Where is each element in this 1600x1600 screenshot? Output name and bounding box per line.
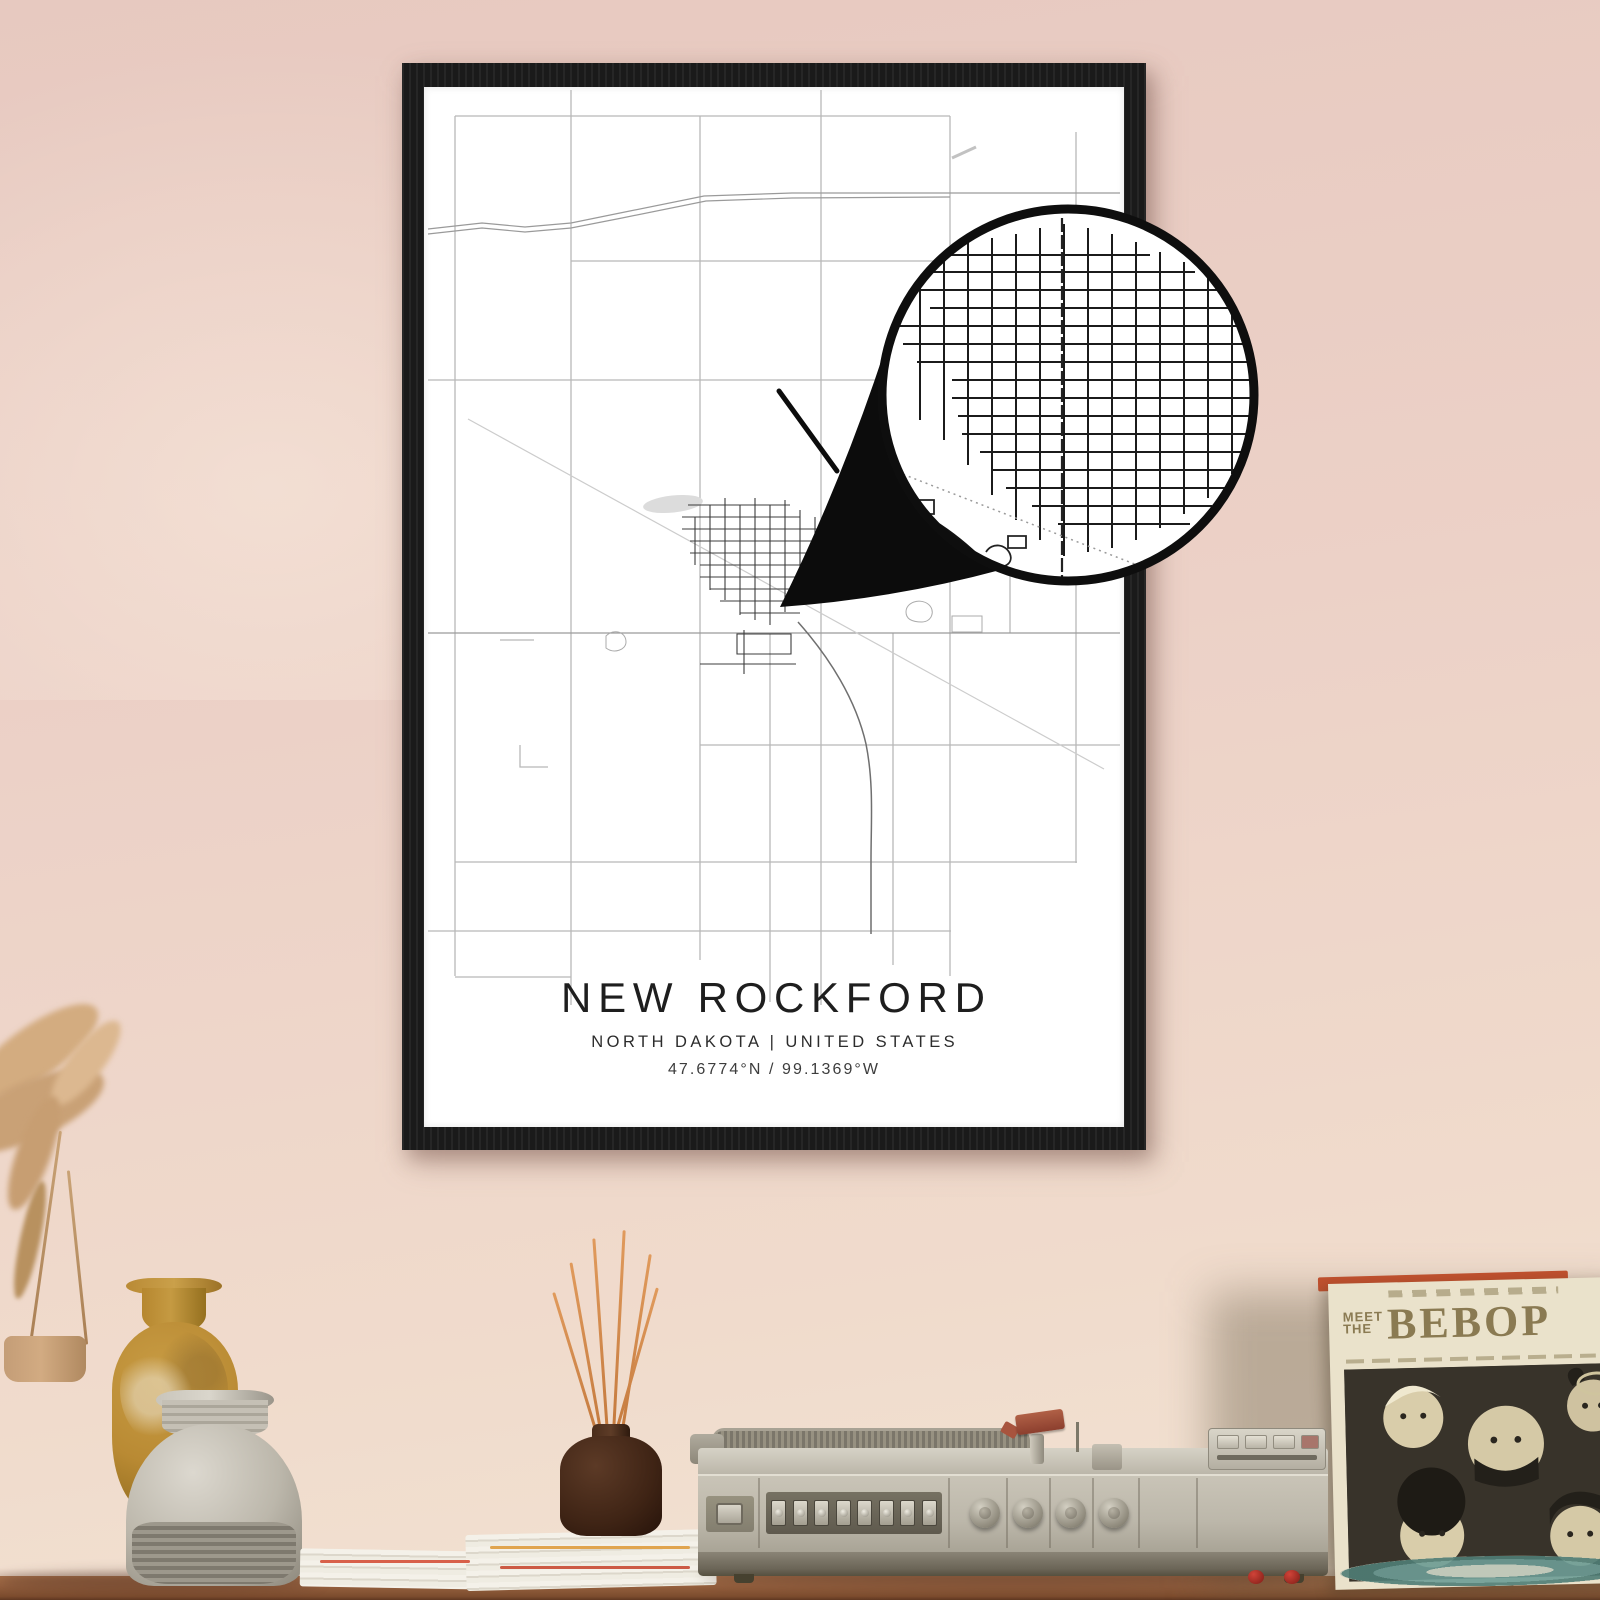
preset-button — [857, 1500, 872, 1526]
preset-button — [922, 1500, 937, 1526]
deck-key — [1217, 1435, 1239, 1449]
power-button-pad — [706, 1496, 754, 1532]
preset-button — [900, 1500, 915, 1526]
deck-slider-slot — [1217, 1455, 1317, 1460]
sleeve-faces-art — [1344, 1363, 1600, 1582]
magazine-stack — [300, 1548, 491, 1589]
sleeve-header: MEET THE BEBOP — [1343, 1299, 1600, 1306]
grass-stem — [67, 1170, 88, 1344]
tonearm-cartridge — [1015, 1409, 1065, 1435]
room-scene: NEW ROCKFORD NORTH DAKOTA | UNITED STATE… — [0, 0, 1600, 1600]
preset-button — [793, 1500, 808, 1526]
reed-diffuser-bottle — [560, 1436, 662, 1536]
panel-seam — [758, 1478, 760, 1548]
player-base — [698, 1552, 1328, 1576]
poster-text-block: NEW ROCKFORD NORTH DAKOTA | UNITED STATE… — [424, 0, 1122, 1130]
magazine-edge — [320, 1560, 470, 1563]
deck-key — [1245, 1435, 1267, 1449]
incense-reed — [552, 1292, 599, 1436]
gray-vase-ribs — [132, 1522, 296, 1584]
preset-button — [814, 1500, 829, 1526]
sleeve-artwork — [1344, 1363, 1600, 1582]
panel-seam — [948, 1478, 950, 1548]
poster-subtitle: NORTH DAKOTA | UNITED STATES — [424, 1033, 1122, 1052]
deck-key — [1273, 1435, 1295, 1449]
poster-coordinates: 47.6774°N / 99.1369°W — [424, 1061, 1122, 1079]
player-foot — [734, 1574, 754, 1583]
panel-seam — [1138, 1478, 1140, 1548]
sleeve-pretitle-line2: THE — [1343, 1323, 1372, 1336]
tan-vase — [0, 1370, 122, 1586]
deck-switch-block — [1092, 1444, 1122, 1470]
magazine-stack — [465, 1529, 716, 1591]
power-button — [716, 1503, 743, 1525]
panel-seam — [1196, 1478, 1198, 1548]
deck-key — [1301, 1435, 1319, 1449]
balance-knob — [1056, 1498, 1086, 1528]
station-preset-buttons — [766, 1492, 942, 1534]
tuning-knob — [1099, 1498, 1129, 1528]
panel-seam — [1049, 1478, 1051, 1548]
sleeve-tracklist-print — [1346, 1353, 1596, 1363]
tonearm-post — [1030, 1434, 1044, 1464]
record-sleeve: MEET THE BEBOP — [1328, 1277, 1600, 1590]
tone-knob — [1013, 1498, 1043, 1528]
incense-reed — [620, 1254, 652, 1436]
poster-title: NEW ROCKFORD — [424, 974, 1122, 1022]
antenna-rod — [1076, 1422, 1079, 1452]
panel-seam — [1006, 1478, 1008, 1548]
sleeve-title: BEBOP — [1386, 1295, 1551, 1350]
magazine-edge — [490, 1546, 690, 1549]
panel-seam — [1092, 1478, 1094, 1548]
preset-button — [879, 1500, 894, 1526]
magazine-edge — [500, 1566, 690, 1569]
volume-knob — [970, 1498, 1000, 1528]
preset-button — [836, 1500, 851, 1526]
deck-control-module — [1208, 1428, 1326, 1470]
red-bead — [1284, 1570, 1300, 1584]
preset-button — [771, 1500, 786, 1526]
red-bead — [1248, 1570, 1264, 1584]
